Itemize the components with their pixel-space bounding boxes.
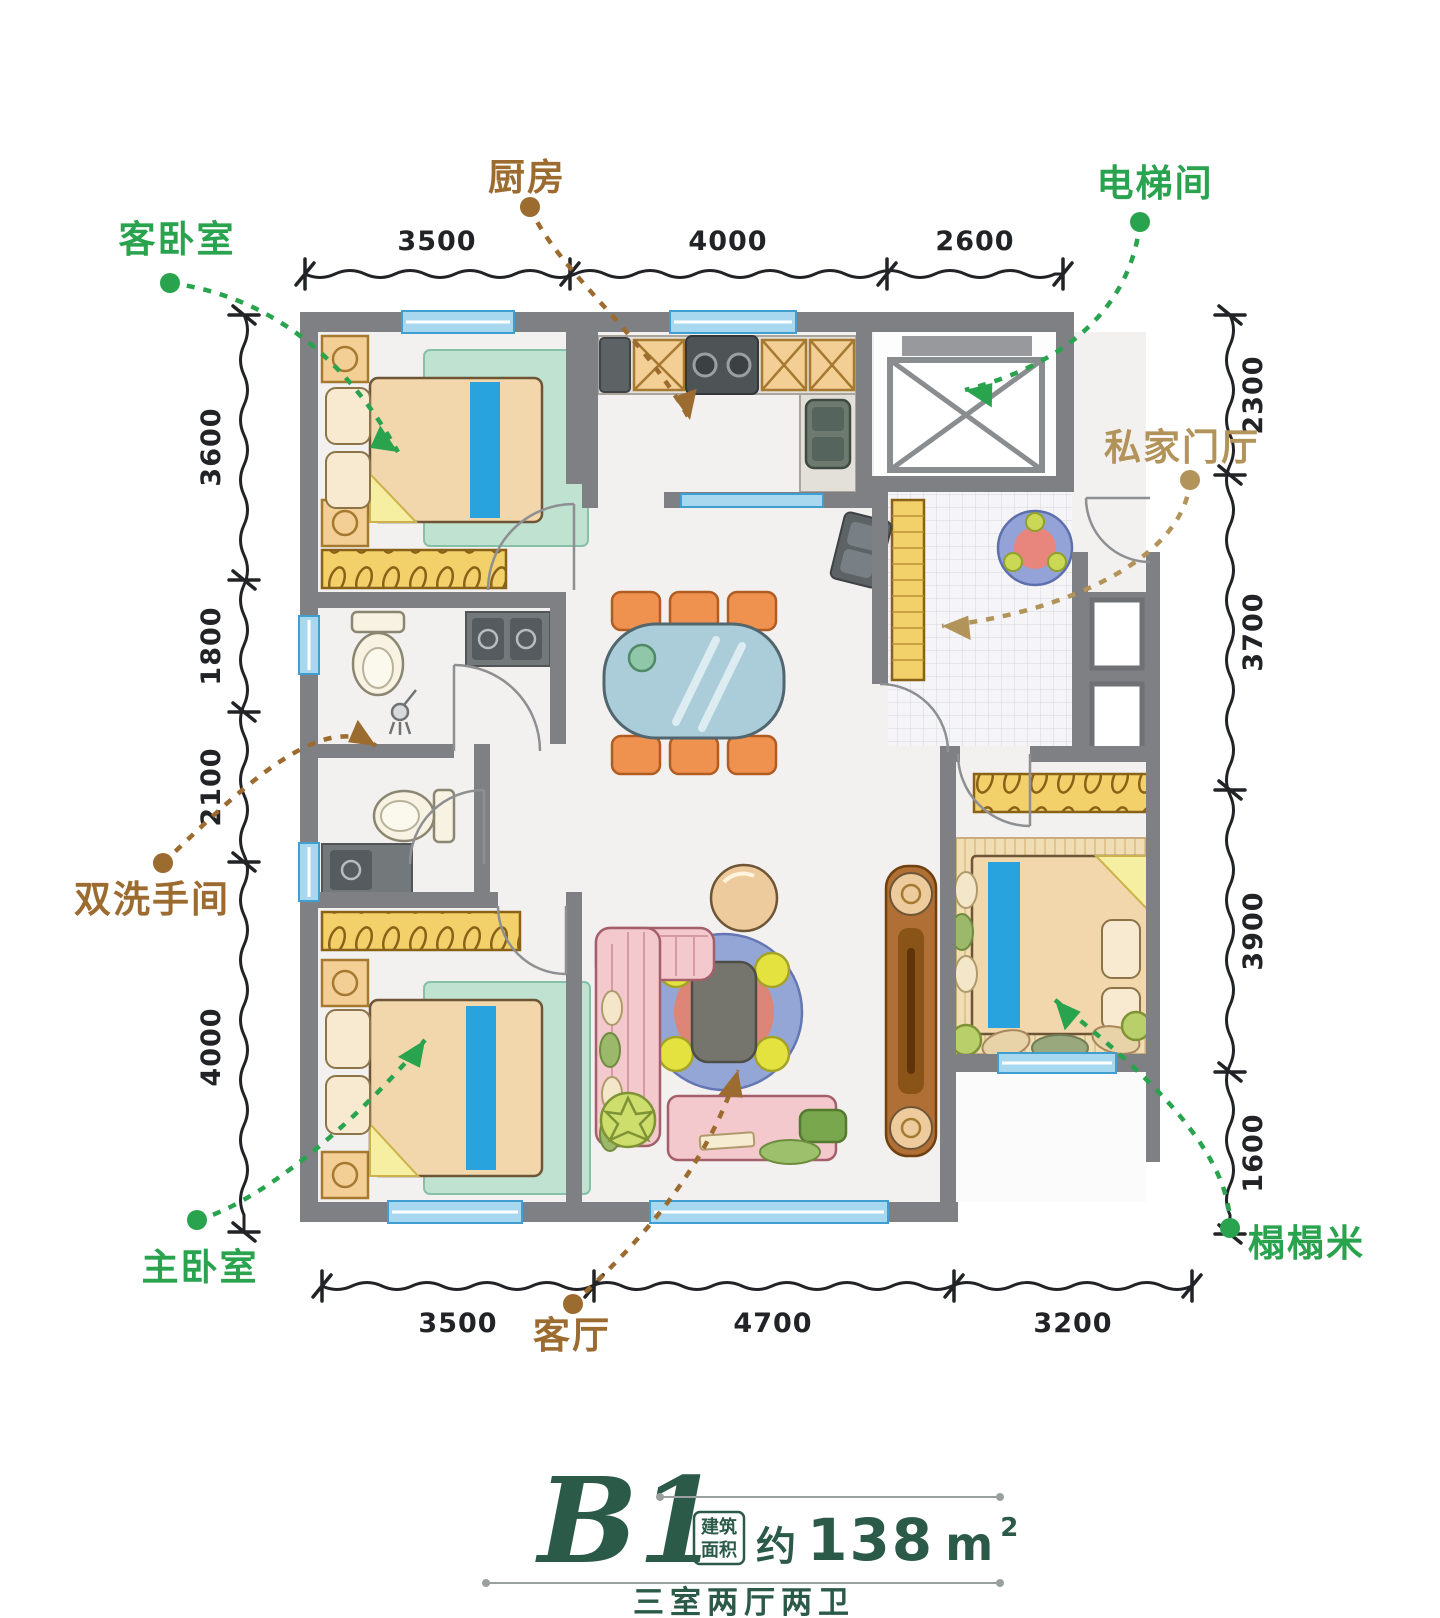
room-label: 电梯间	[1097, 162, 1214, 205]
balcony-floor	[956, 1072, 1146, 1202]
plant-icon	[601, 1093, 655, 1147]
cushion	[955, 872, 977, 908]
flower-table	[998, 511, 1072, 585]
floorplan-canvas: 3500 4000 2600 3500 4700 3200 3600 1800 …	[0, 0, 1440, 1618]
window	[299, 843, 319, 901]
double-vanity	[466, 612, 550, 666]
toilet-icon	[374, 790, 454, 842]
speaker	[890, 1107, 932, 1149]
speaker	[890, 873, 932, 915]
wall-foyer-right	[1072, 552, 1088, 762]
dim-top-1: 3500	[397, 226, 476, 257]
wall-bath-upper-right	[550, 592, 566, 744]
nightstand	[322, 960, 368, 1006]
wall-kitchen-right	[856, 332, 872, 492]
shoe-cabinet	[892, 500, 924, 680]
wardrobe-hangers	[322, 550, 506, 588]
room-label: 客厅	[533, 1314, 611, 1357]
dim-left-2: 1800	[196, 606, 227, 685]
window	[650, 1201, 888, 1223]
window	[299, 616, 319, 674]
pillow	[1102, 920, 1140, 978]
cabinet-x	[762, 340, 806, 390]
leader-dot	[520, 197, 540, 217]
pass-through-window	[681, 494, 823, 507]
pouf	[755, 953, 789, 987]
bed-runner	[988, 862, 1020, 1028]
window	[998, 1053, 1116, 1073]
dimension-left: 3600 1800 2100 4000	[196, 306, 259, 1241]
badge-line2: 面积	[701, 1540, 737, 1561]
leader-dot	[1220, 1218, 1240, 1238]
window	[670, 311, 796, 333]
leader-dot	[1180, 470, 1200, 490]
wall-master-right	[566, 892, 582, 1202]
pillow	[326, 388, 370, 444]
leader-dot	[563, 1294, 583, 1314]
badge-line1: 建筑	[701, 1516, 737, 1538]
cushion	[602, 991, 622, 1025]
wall-foyer-left	[872, 492, 888, 684]
dim-right-1: 2300	[1238, 355, 1269, 434]
area-text: 约 138 m 2	[756, 1506, 1018, 1574]
pillow	[326, 452, 370, 508]
room-label: 私家门厅	[1104, 426, 1260, 469]
dimension-top: 3500 4000 2600	[296, 226, 1072, 289]
vanity	[322, 844, 412, 896]
wall-elevator-bottom	[856, 476, 1072, 492]
green-cushion	[800, 1110, 846, 1142]
leader-dot	[1130, 212, 1150, 232]
wall-tatami-top	[1030, 746, 1156, 762]
wardrobe-hangers	[974, 774, 1148, 812]
room-label: 榻榻米	[1248, 1222, 1365, 1265]
cushion	[600, 1033, 620, 1067]
dim-right-3: 3900	[1238, 891, 1269, 970]
wall-guestroom-bottom	[318, 592, 566, 608]
plan-subtitle: 三室两厅两卫	[633, 1585, 855, 1618]
dim-bottom-2: 4700	[733, 1308, 812, 1339]
cabinet-x	[810, 340, 854, 390]
tv-console	[886, 866, 936, 1156]
dim-left-1: 3600	[196, 407, 227, 486]
dimension-bottom: 3500 4700 3200	[313, 1271, 1201, 1339]
leader-dot	[187, 1210, 207, 1230]
room-label: 厨房	[488, 156, 566, 199]
wall-guestroom-right	[566, 332, 582, 484]
toilet-icon	[352, 612, 404, 695]
wall-bath-divider	[318, 744, 454, 758]
side-table	[711, 865, 777, 931]
bed-runner	[466, 1006, 496, 1170]
cabinet-x	[634, 340, 684, 390]
title-block: B1 建筑 面积 约 138 m 2 三室两厅两卫	[482, 1451, 1018, 1618]
stove-icon	[686, 336, 758, 394]
elevator-shaft-icon	[890, 360, 1042, 470]
room-label: 双洗手间	[74, 878, 230, 921]
pouf	[659, 1037, 693, 1071]
dim-left-4: 4000	[196, 1007, 227, 1086]
wall-cabinets	[1084, 592, 1146, 760]
plan-code: B1	[535, 1451, 720, 1590]
leader-dot	[160, 273, 180, 293]
wardrobe-hangers	[322, 912, 520, 950]
room-label: 主卧室	[142, 1246, 259, 1289]
bed	[370, 1000, 542, 1176]
pillow	[326, 1010, 370, 1068]
dim-bottom-1: 3500	[418, 1308, 497, 1339]
dim-top-2: 4000	[688, 226, 767, 257]
room-label: 客卧室	[119, 218, 236, 261]
nightstand	[322, 1152, 368, 1198]
cabinet-box	[1092, 684, 1142, 752]
dim-right-4: 1600	[1238, 1113, 1269, 1192]
wall-master-top	[318, 892, 498, 908]
nightstand	[322, 336, 368, 382]
floorplan-page: 3500 4000 2600 3500 4700 3200 3600 1800 …	[0, 0, 1440, 1618]
cushion	[955, 956, 977, 992]
dim-top-3: 2600	[935, 226, 1014, 257]
dining-chair	[670, 736, 718, 774]
wall-living-tatami	[940, 746, 956, 1222]
wall-bath-lower-right	[474, 744, 490, 908]
green-cushion	[760, 1140, 820, 1164]
tv-bench	[668, 1096, 846, 1164]
dining-chair	[728, 736, 776, 774]
leader-dot	[153, 853, 173, 873]
plant-icon	[1122, 1012, 1150, 1040]
pouf	[755, 1037, 789, 1071]
window	[388, 1201, 522, 1223]
wall-left	[300, 312, 318, 1222]
dining-chair	[612, 736, 660, 774]
elevator-room	[874, 332, 1056, 476]
dim-right-2: 3700	[1238, 592, 1269, 671]
cabinet-box	[1092, 600, 1142, 668]
tall-cabinet	[600, 338, 630, 392]
dim-bottom-3: 3200	[1033, 1308, 1112, 1339]
wall-kitchen-left	[582, 332, 598, 508]
table-plant-icon	[629, 645, 655, 671]
window	[402, 311, 514, 333]
elevator-door-sill	[902, 336, 1032, 356]
bed-runner	[470, 382, 500, 518]
dining-table	[604, 624, 784, 738]
sink-icon	[806, 400, 850, 468]
